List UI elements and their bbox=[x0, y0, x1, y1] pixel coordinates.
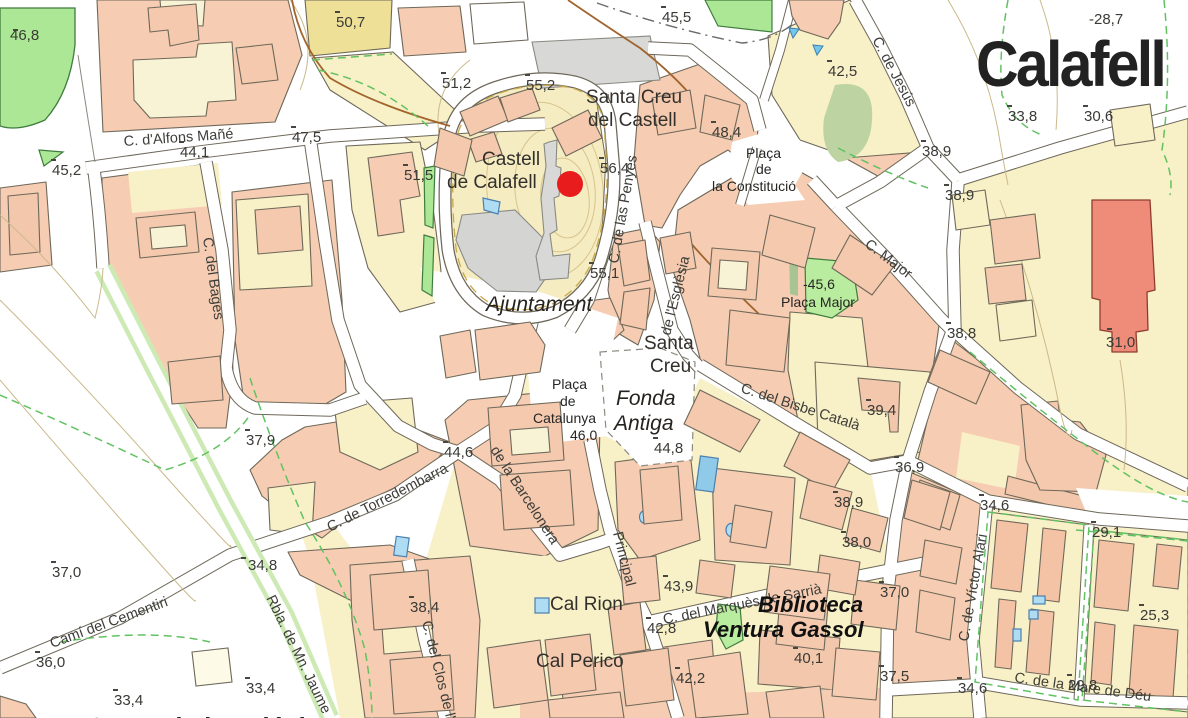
svg-text:Creu: Creu bbox=[650, 356, 691, 377]
svg-text:Antiga: Antiga bbox=[612, 412, 674, 435]
svg-text:43,9: 43,9 bbox=[664, 578, 693, 595]
svg-text:Calafell: Calafell bbox=[976, 28, 1164, 100]
svg-text:51,5: 51,5 bbox=[404, 167, 433, 184]
svg-text:38,0: 38,0 bbox=[842, 534, 871, 551]
svg-text:Cal Perico: Cal Perico bbox=[536, 651, 624, 672]
svg-text:36,0: 36,0 bbox=[36, 654, 65, 671]
svg-text:de: de bbox=[560, 393, 576, 409]
svg-text:40,1: 40,1 bbox=[794, 650, 823, 667]
svg-text:37,5: 37,5 bbox=[880, 668, 909, 685]
svg-text:25,3: 25,3 bbox=[1140, 607, 1169, 624]
svg-text:37,0: 37,0 bbox=[880, 584, 909, 601]
svg-text:38,9: 38,9 bbox=[945, 187, 974, 204]
svg-text:37,9: 37,9 bbox=[246, 432, 275, 449]
svg-text:Plaça: Plaça bbox=[746, 145, 781, 161]
svg-text:45,2: 45,2 bbox=[52, 162, 81, 179]
svg-text:44,6: 44,6 bbox=[444, 444, 473, 461]
svg-text:31,0: 31,0 bbox=[1106, 334, 1135, 351]
svg-text:38,4: 38,4 bbox=[410, 599, 439, 616]
svg-text:Ventura Gassol: Ventura Gassol bbox=[703, 617, 864, 642]
svg-text:38,9: 38,9 bbox=[834, 494, 863, 511]
svg-text:34,8: 34,8 bbox=[248, 557, 277, 574]
svg-text:42,2: 42,2 bbox=[676, 670, 705, 687]
svg-text:37,0: 37,0 bbox=[52, 564, 81, 581]
svg-text:55,1: 55,1 bbox=[590, 265, 619, 282]
svg-text:34,6: 34,6 bbox=[958, 680, 987, 697]
svg-text:33,4: 33,4 bbox=[246, 680, 275, 697]
svg-text:de Calafell: de Calafell bbox=[447, 172, 537, 193]
svg-text:Catalunya: Catalunya bbox=[533, 410, 596, 426]
svg-text:50,7: 50,7 bbox=[336, 14, 365, 31]
svg-text:Biblioteca: Biblioteca bbox=[758, 592, 863, 617]
svg-text:45,5: 45,5 bbox=[662, 9, 691, 26]
svg-text:55,2: 55,2 bbox=[526, 77, 555, 94]
svg-text:Camp de l'església: Camp de l'església bbox=[85, 712, 318, 718]
svg-text:33,4: 33,4 bbox=[114, 692, 143, 709]
svg-text:48,4: 48,4 bbox=[712, 124, 741, 141]
svg-text:33,8: 33,8 bbox=[1008, 108, 1037, 125]
svg-text:51,2: 51,2 bbox=[442, 75, 471, 92]
svg-text:-45,6: -45,6 bbox=[803, 276, 835, 292]
svg-text:46,8: 46,8 bbox=[10, 27, 39, 44]
svg-text:de: de bbox=[756, 161, 772, 177]
svg-text:46,0: 46,0 bbox=[570, 427, 597, 443]
svg-text:la Constitució: la Constitució bbox=[712, 178, 796, 194]
svg-text:38,8: 38,8 bbox=[947, 325, 976, 342]
svg-text:Santa: Santa bbox=[644, 333, 694, 354]
svg-text:29,1: 29,1 bbox=[1092, 524, 1121, 541]
svg-text:36,9: 36,9 bbox=[895, 459, 924, 476]
svg-text:del Castell: del Castell bbox=[588, 110, 677, 131]
svg-text:Plaça: Plaça bbox=[552, 376, 587, 392]
svg-text:Castell: Castell bbox=[482, 149, 540, 170]
svg-text:Plaça Major: Plaça Major bbox=[781, 294, 855, 310]
svg-text:30,6: 30,6 bbox=[1084, 108, 1113, 125]
svg-text:38,9: 38,9 bbox=[922, 143, 951, 160]
svg-text:44,8: 44,8 bbox=[654, 440, 683, 457]
svg-text:44,1: 44,1 bbox=[180, 144, 209, 161]
svg-text:Fonda: Fonda bbox=[616, 387, 676, 410]
svg-text:Santa Creu: Santa Creu bbox=[586, 87, 682, 108]
svg-text:Ajuntament: Ajuntament bbox=[484, 293, 593, 316]
svg-text:47,5: 47,5 bbox=[292, 129, 321, 146]
svg-text:-28,7: -28,7 bbox=[1089, 11, 1123, 28]
svg-text:39,4: 39,4 bbox=[867, 402, 896, 419]
svg-text:34,6: 34,6 bbox=[980, 497, 1009, 514]
svg-text:42,5: 42,5 bbox=[828, 63, 857, 80]
svg-text:Cal Rion: Cal Rion bbox=[550, 594, 623, 615]
